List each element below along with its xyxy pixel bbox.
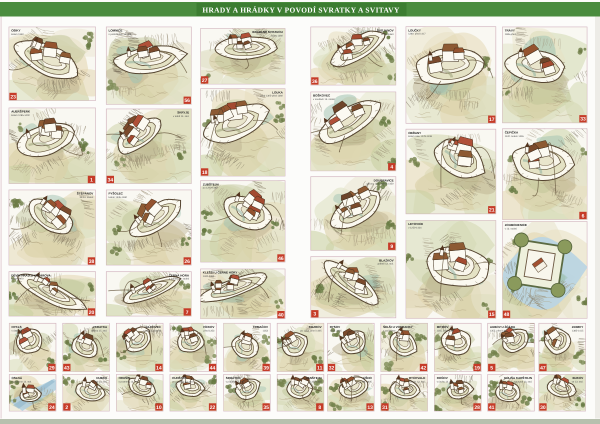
- svg-text:31: 31: [382, 405, 388, 411]
- svg-text:5: 5: [490, 365, 493, 371]
- svg-text:19: 19: [474, 365, 480, 371]
- svg-text:44: 44: [210, 365, 216, 371]
- svg-text:ok.14. století: ok.14. století: [80, 196, 94, 199]
- svg-text:DĚVÍN HRAD U KOZÁROVA: DĚVÍN HRAD U KOZÁROVA: [11, 273, 51, 277]
- svg-text:3: 3: [313, 312, 316, 318]
- svg-text:34: 34: [108, 177, 114, 183]
- svg-text:s pramene 13. stol.: s pramene 13. stol.: [12, 381, 33, 384]
- svg-text:OSLNÁ: OSLNÁ: [12, 376, 23, 380]
- svg-text:HRUŠÍN: HRUŠÍN: [119, 376, 131, 380]
- svg-text:ČERNÁ HORA: ČERNÁ HORA: [169, 273, 190, 277]
- svg-text:v pradině 13. stol.: v pradině 13. stol.: [226, 381, 245, 384]
- svg-text:AUBOV U ŽĎÁRU: AUBOV U ŽĎÁRU: [490, 325, 515, 329]
- svg-text:VÍCKOV: VÍCKOV: [203, 325, 215, 329]
- svg-text:ROŇOV: ROŇOV: [437, 376, 448, 380]
- svg-text:13: 13: [367, 405, 373, 411]
- svg-text:42: 42: [421, 365, 427, 371]
- svg-text:SRDÁTKO: SRDÁTKO: [226, 376, 241, 380]
- svg-text:ZKRATKA: ZKRATKA: [93, 325, 108, 329]
- svg-text:1360. před 1417: 1360. před 1417: [408, 33, 426, 36]
- svg-text:BUKOV: BUKOV: [572, 376, 583, 380]
- svg-text:15: 15: [489, 312, 495, 318]
- svg-text:RYCHVALD: RYCHVALD: [409, 376, 426, 380]
- svg-text:v úterý 13. stol.: v úterý 13. stol.: [12, 329, 29, 332]
- svg-text:1365-před: 1365-před: [505, 33, 517, 36]
- svg-text:7: 7: [186, 310, 189, 316]
- svg-text:28: 28: [474, 405, 480, 411]
- svg-text:1385-1415: 1385-1415: [572, 329, 584, 332]
- svg-text:47: 47: [540, 365, 546, 371]
- svg-text:32: 32: [329, 365, 335, 371]
- svg-text:9: 9: [390, 244, 393, 250]
- svg-text:spravedl 13. stol.: spravedl 13. stol.: [514, 381, 532, 384]
- svg-text:1: 1: [90, 177, 93, 183]
- svg-text:ve 13. stol.: ve 13. stol.: [572, 381, 584, 384]
- svg-text:DUBKU: DUBKU: [96, 376, 107, 380]
- svg-text:zpětně 13. stol.: zpětně 13. stol.: [377, 263, 394, 266]
- svg-text:1355. před 1387: 1355. před 1387: [490, 329, 508, 332]
- svg-text:KOZROV: KOZROV: [309, 325, 322, 329]
- svg-text:29: 29: [49, 365, 55, 371]
- svg-text:před 1305-před 1360: před 1305-před 1360: [260, 95, 283, 98]
- svg-text:DOUBRAVICE: DOUBRAVICE: [374, 178, 394, 182]
- svg-text:41: 41: [489, 405, 495, 411]
- svg-text:JANŠTEJN: JANŠTEJN: [306, 376, 322, 380]
- svg-text:35: 35: [263, 405, 269, 411]
- svg-text:MITROV: MITROV: [437, 325, 449, 329]
- svg-text:1258. 1365: 1258. 1365: [330, 329, 343, 332]
- svg-text:OBŘANY: OBŘANY: [408, 131, 421, 135]
- svg-text:ZUBŠTEJN: ZUBŠTEJN: [203, 182, 219, 186]
- svg-text:BRADLNÉ SVITAVOU: BRADLNÉ SVITAVOU: [252, 30, 282, 34]
- svg-text:OSIKY: OSIKY: [11, 29, 20, 33]
- svg-text:1353: 1353: [263, 329, 269, 332]
- svg-text:8: 8: [318, 405, 321, 411]
- svg-text:kolem 1350: kolem 1350: [11, 33, 24, 36]
- svg-text:SKRYJE: SKRYJE: [177, 111, 189, 115]
- svg-text:LOUČKY: LOUČKY: [408, 28, 421, 32]
- svg-text:kolem 1470: kolem 1470: [11, 278, 24, 281]
- svg-text:2: 2: [65, 405, 68, 411]
- svg-text:KULIŠA KARŠTEJN: KULIŠA KARŠTEJN: [504, 376, 532, 380]
- svg-text:LETOVICE: LETOVICE: [408, 222, 423, 226]
- svg-text:ČEPIČKA: ČEPIČKA: [505, 130, 519, 134]
- svg-text:4: 4: [390, 165, 393, 171]
- svg-text:s podzámčím 13. stol.: s podzámčím 13. stol.: [109, 33, 133, 36]
- svg-text:48: 48: [504, 312, 510, 318]
- svg-text:26: 26: [184, 259, 190, 265]
- svg-text:PYŠOLEC: PYŠOLEC: [109, 192, 124, 196]
- svg-text:ŠELŠI U VODRANKY: ŠELŠI U VODRANKY: [383, 325, 413, 329]
- svg-text:1320-1390: 1320-1390: [203, 275, 215, 278]
- svg-text:v sondách 13. století: v sondách 13. století: [313, 98, 335, 101]
- svg-text:43: 43: [64, 365, 70, 371]
- svg-text:BLAŽKOV: BLAŽKOV: [379, 258, 394, 262]
- svg-text:39: 39: [263, 365, 269, 371]
- svg-text:LÍŠNO: LÍŠNO: [363, 376, 373, 380]
- svg-text:17: 17: [489, 117, 495, 123]
- svg-text:NYKLS: NYKLS: [12, 325, 22, 329]
- svg-text:1353-1415: 1353-1415: [310, 381, 322, 384]
- svg-text:před 1353: před 1353: [204, 329, 215, 332]
- svg-text:v 13. století: v 13. století: [381, 33, 394, 36]
- svg-text:38: 38: [89, 259, 95, 265]
- svg-text:21: 21: [489, 208, 495, 214]
- svg-text:TRÁVY: TRÁVY: [505, 29, 515, 33]
- svg-text:ZDIMKY: ZDIMKY: [572, 325, 584, 329]
- svg-text:30: 30: [540, 405, 546, 411]
- svg-text:SVOJANOV: SVOJANOV: [377, 29, 394, 33]
- svg-text:v 1250-1424: v 1250-1424: [408, 227, 422, 230]
- svg-text:KUNŠTÁT: KUNŠTÁT: [172, 376, 186, 380]
- svg-text:kolem roku 1278-1316: kolem roku 1278-1316: [408, 135, 432, 138]
- svg-text:LOUKA: LOUKA: [272, 90, 283, 94]
- svg-text:18: 18: [202, 170, 208, 176]
- svg-text:24: 24: [49, 405, 55, 411]
- svg-text:přímo 13. stol.: přímo 13. stol.: [92, 381, 107, 384]
- svg-text:zelena 15. stol.: zelena 15. stol.: [91, 329, 107, 332]
- svg-text:LILKOVEC: LILKOVEC: [146, 325, 162, 329]
- svg-text:KLEŠSI U ČERNÉ HORY: KLEŠSI U ČERNÉ HORY: [203, 271, 238, 275]
- svg-text:11: 11: [317, 365, 323, 371]
- svg-text:kolny 1360: kolny 1360: [271, 35, 283, 38]
- svg-text:v úterý 5. pásmě: v úterý 5. pásmě: [143, 329, 161, 332]
- svg-text:s údolím 13. století: s údolím 13. století: [169, 278, 189, 281]
- svg-text:AUERŠPERK: AUERŠPERK: [11, 110, 31, 114]
- svg-text:10: 10: [156, 405, 162, 411]
- svg-text:s počátkem: s počátkem: [383, 329, 395, 332]
- svg-text:14: 14: [156, 365, 162, 371]
- svg-text:1420. kolem 1455: 1420. kolem 1455: [505, 135, 525, 138]
- svg-text:kolem 1335-1460: kolem 1335-1460: [109, 196, 128, 199]
- svg-text:s úsvitu 13. stol.: s úsvitu 13. stol.: [408, 381, 425, 384]
- svg-text:46: 46: [278, 256, 284, 262]
- svg-text:ZOUBODENICE: ZOUBODENICE: [505, 223, 527, 227]
- svg-text:gerova 1255. konec 1450: gerova 1255. konec 1450: [367, 183, 395, 186]
- svg-text:20: 20: [89, 310, 95, 316]
- svg-text:po pradědy 13. stol.: po pradědy 13. stol.: [172, 381, 193, 384]
- svg-text:6: 6: [582, 213, 585, 219]
- svg-text:TRMAČOV: TRMAČOV: [253, 325, 268, 329]
- svg-text:po 1200-1460: po 1200-1460: [203, 187, 218, 190]
- svg-text:RYSOV: RYSOV: [330, 325, 340, 329]
- svg-text:22: 22: [210, 405, 216, 411]
- svg-text:27: 27: [202, 78, 208, 84]
- svg-text:ŠTĚPÁNOV: ŠTĚPÁNOV: [77, 192, 94, 196]
- svg-text:s pramene 13. stol.: s pramene 13. stol.: [119, 381, 140, 384]
- svg-text:kolem 1285-1400: kolem 1285-1400: [11, 114, 30, 117]
- svg-text:40: 40: [278, 313, 284, 319]
- svg-text:v údolí 14. stol.: v údolí 14. stol.: [173, 115, 189, 118]
- svg-text:po 1353. první 1405: po 1353. první 1405: [300, 329, 322, 332]
- svg-text:HRADY A HRÁDKY V POVODÍ SVRATK: HRADY A HRÁDKY V POVODÍ SVRATKY A SVITAV…: [202, 6, 400, 15]
- svg-text:33: 33: [580, 117, 586, 123]
- svg-text:BOŠKOVEC: BOŠKOVEC: [313, 94, 331, 98]
- svg-text:v úsvitu 13. stol.: v úsvitu 13. stol.: [437, 381, 454, 384]
- svg-text:1398. 1405: 1398. 1405: [360, 381, 373, 384]
- svg-text:36: 36: [312, 79, 318, 85]
- svg-text:LOMNICE: LOMNICE: [109, 29, 123, 33]
- svg-text:23: 23: [10, 94, 16, 100]
- svg-text:56: 56: [184, 98, 190, 104]
- svg-text:v 13. století: v 13. století: [505, 228, 518, 231]
- svg-text:1355. před 1385: 1355. před 1385: [437, 329, 455, 332]
